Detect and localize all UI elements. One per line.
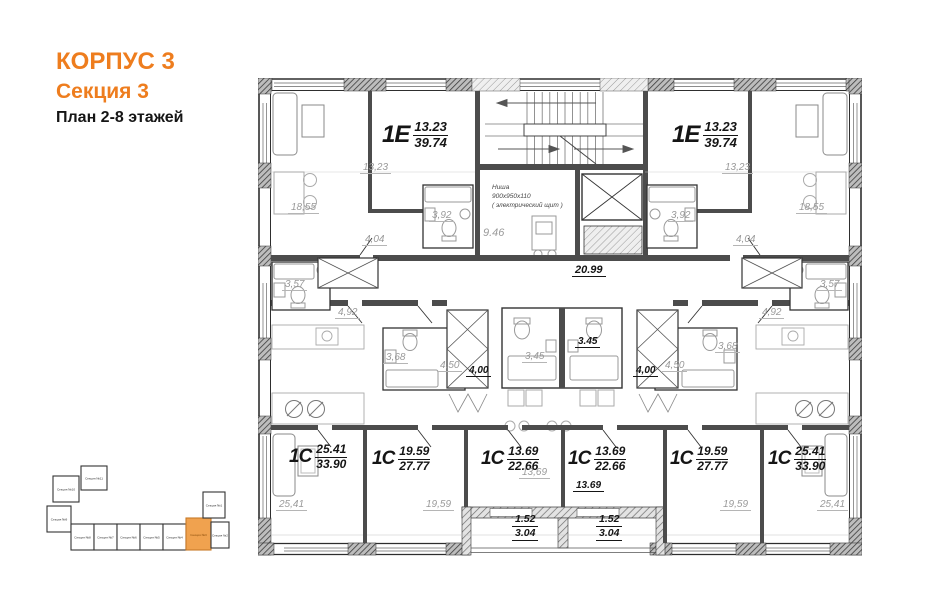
area-label: 3,57 — [282, 279, 307, 291]
minimap-section-3-highlighted[interactable]: Секция №3 — [186, 518, 211, 550]
area-label: 18,55 — [288, 202, 319, 214]
apartment-label-1c-4: 1С 13.6922.66 — [568, 445, 626, 474]
dim-label: 4,92 — [335, 307, 360, 319]
dim-label: 4,00 — [466, 365, 491, 377]
svg-text:Секция №7: Секция №7 — [97, 536, 114, 540]
area-label: 19,59 — [423, 499, 454, 511]
svg-text:Секция №10: Секция №10 — [57, 488, 75, 492]
center-bathrooms — [502, 308, 622, 431]
section-title: Секция 3 — [56, 80, 149, 104]
svg-text:Секция №11: Секция №11 — [85, 477, 103, 481]
minimap-section-4[interactable]: Секция №4 — [163, 524, 186, 550]
dim-label: 4,50 — [662, 360, 687, 372]
dim-label: 4,04 — [733, 234, 758, 246]
lobby-area-label: 9.46 — [480, 227, 507, 239]
area-label: 13.69 — [573, 480, 604, 492]
corridor-area-label: 20.99 — [572, 264, 606, 277]
area-label: 3,45 — [522, 351, 547, 363]
floors-subtitle: План 2-8 этажей — [56, 109, 183, 127]
minimap-section-5[interactable]: Секция №5 — [140, 524, 163, 550]
svg-text:Секция №2: Секция №2 — [212, 534, 228, 538]
minimap-section-10[interactable]: Секция №10 — [53, 476, 79, 502]
page-title: КОРПУС 3 — [56, 48, 175, 76]
svg-text:Секция №4: Секция №4 — [166, 536, 183, 540]
dim-label: 4,92 — [759, 307, 784, 319]
stroller-icon — [532, 216, 556, 258]
area-label: 13,69 — [519, 467, 550, 479]
svg-text:Секция №6: Секция №6 — [120, 536, 137, 540]
area-label: 19,59 — [720, 499, 751, 511]
apartment-label-1e-left: 1Е 13.2339.74 — [382, 120, 448, 151]
minimap-section-11[interactable]: Секция №11 — [81, 466, 107, 490]
area-label: 3,68 — [715, 341, 740, 353]
area-label: 3.45 — [575, 336, 600, 348]
building-minimap: Секция №10 Секция №11 Секция №9 Секция №… — [45, 462, 230, 562]
minimap-section-1[interactable]: Секция №1 — [203, 492, 225, 518]
svg-text:Секция №3: Секция №3 — [190, 533, 207, 537]
apartment-label-1c-6: 1С 25.4133.90 — [768, 445, 826, 474]
dim-label: 4,00 — [633, 365, 658, 377]
area-label: 18,55 — [796, 202, 827, 214]
area-label: 25,41 — [817, 499, 848, 511]
niche-note: Ниша 900х950х110 ( электрический щит ) — [492, 184, 563, 210]
floor-plan-drawing — [258, 78, 862, 560]
dim-label: 4,50 — [437, 360, 462, 372]
area-label: 3,68 — [383, 352, 408, 364]
balcony-area-right: 1.523.04 — [596, 513, 622, 541]
dim-label: 13,23 — [722, 162, 753, 174]
svg-text:Секция №8: Секция №8 — [74, 536, 91, 540]
dim-label: 13,23 — [360, 162, 391, 174]
area-label: 3,92 — [429, 210, 454, 222]
area-label: 3,92 — [668, 210, 693, 222]
minimap-section-7[interactable]: Секция №7 — [94, 524, 117, 550]
apartment-label-1c-1: 1С 25.4133.90 — [289, 443, 347, 472]
balcony-area-left: 1.523.04 — [512, 513, 538, 541]
minimap-section-9[interactable]: Секция №9 — [47, 506, 71, 532]
minimap-section-6[interactable]: Секция №6 — [117, 524, 140, 550]
minimap-section-2[interactable]: Секция №2 — [211, 522, 229, 548]
svg-text:Секция №9: Секция №9 — [51, 518, 68, 522]
apartment-label-1c-5: 1С 19.5927.77 — [670, 445, 728, 474]
area-label: 3,57 — [817, 279, 842, 291]
svg-text:Секция №1: Секция №1 — [206, 504, 223, 508]
dim-label: 4,04 — [362, 234, 387, 246]
minimap-section-8[interactable]: Секция №8 — [71, 524, 94, 550]
floor-plan-page: КОРПУС 3 Секция 3 План 2-8 этажей — [0, 0, 941, 600]
elevator-shaft — [582, 174, 642, 254]
area-label: 25,41 — [276, 499, 307, 511]
svg-text:Секция №5: Секция №5 — [143, 536, 160, 540]
apartment-label-1c-2: 1С 19.5927.77 — [372, 445, 430, 474]
apartment-label-1e-right: 1Е 13.2339.74 — [672, 120, 738, 151]
